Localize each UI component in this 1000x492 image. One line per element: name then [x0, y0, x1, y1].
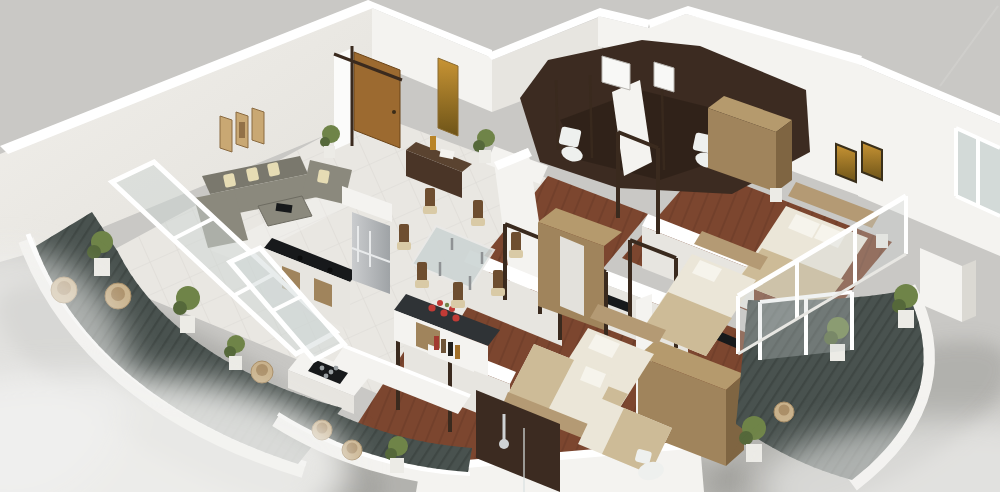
wicker-chair — [251, 361, 273, 383]
right-white-column-side — [962, 260, 976, 322]
speaker-dot — [298, 256, 303, 261]
floor-plan-render — [0, 0, 1000, 492]
burner — [334, 366, 339, 371]
door-knob — [392, 110, 396, 114]
wardrobe-mirror — [560, 236, 584, 316]
dining-chair — [491, 270, 505, 296]
dining-chair — [451, 282, 465, 308]
dining-chair — [415, 262, 429, 288]
wicker-chair — [774, 402, 794, 422]
dining-chair — [397, 224, 411, 250]
dining-chair — [509, 232, 523, 258]
shower-head-disc — [499, 439, 509, 449]
wicker-chair — [105, 283, 131, 309]
console-vase — [430, 136, 436, 150]
nightstand — [770, 188, 782, 202]
burner — [324, 374, 329, 379]
dining-chair — [471, 200, 485, 226]
speaker-dot — [328, 268, 333, 273]
burner — [320, 366, 325, 371]
burner — [329, 370, 334, 375]
dining-chair — [423, 188, 437, 214]
sofa-pillow — [317, 169, 330, 184]
apartment-3d-scene — [0, 0, 1000, 492]
tall-painting — [438, 58, 458, 136]
